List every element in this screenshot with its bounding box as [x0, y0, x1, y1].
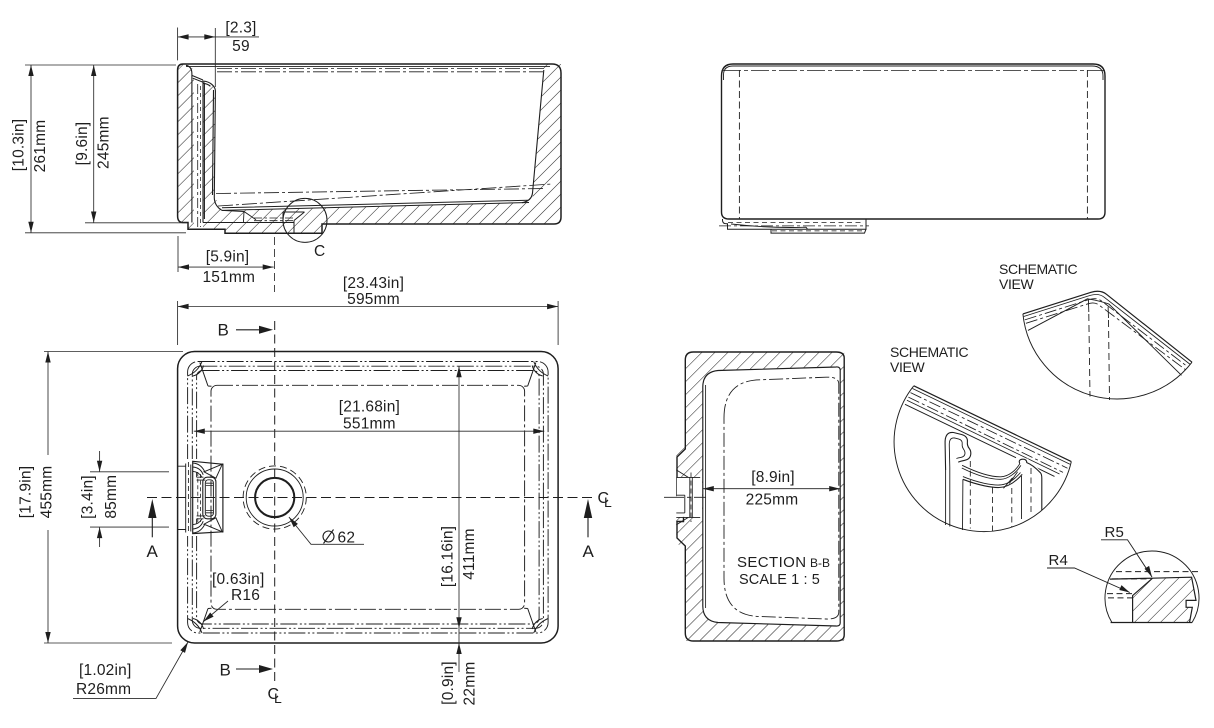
svg-text:[2.3]: [2.3]: [225, 20, 256, 37]
svg-text:R5: R5: [1105, 524, 1125, 541]
svg-text:SCHEMATIC: SCHEMATIC: [890, 344, 968, 360]
svg-text:A: A: [147, 542, 159, 561]
svg-text:[17.9in]: [17.9in]: [18, 466, 35, 518]
svg-text:L: L: [274, 690, 282, 706]
svg-text:B: B: [220, 661, 231, 680]
svg-text:A: A: [583, 542, 595, 561]
svg-text:62: 62: [338, 530, 356, 547]
svg-text:225mm: 225mm: [746, 492, 799, 509]
svg-text:SECTION: SECTION: [737, 554, 806, 571]
svg-text:R16: R16: [231, 587, 260, 604]
svg-text:SCHEMATIC: SCHEMATIC: [999, 261, 1077, 277]
svg-text:59: 59: [232, 38, 250, 55]
svg-text:261mm: 261mm: [32, 120, 49, 173]
svg-text:[0.9in]: [0.9in]: [440, 661, 457, 705]
svg-text:151mm: 151mm: [202, 269, 255, 286]
svg-text:[1.02in]: [1.02in]: [79, 662, 131, 679]
svg-text:R26mm: R26mm: [76, 681, 131, 698]
svg-text:SCALE 1 : 5: SCALE 1 : 5: [739, 572, 820, 588]
svg-text:85mm: 85mm: [103, 475, 120, 519]
svg-text:245mm: 245mm: [96, 116, 113, 169]
svg-text:VIEW: VIEW: [890, 359, 926, 375]
svg-text:[5.9in]: [5.9in]: [206, 249, 250, 266]
svg-text:455mm: 455mm: [39, 466, 56, 519]
svg-text:411mm: 411mm: [461, 528, 478, 580]
svg-text:L: L: [604, 494, 612, 510]
svg-text:[10.3in]: [10.3in]: [11, 119, 28, 171]
svg-text:R4: R4: [1049, 552, 1069, 569]
svg-text:[23.43in]: [23.43in]: [343, 275, 404, 292]
svg-text:[3.4in]: [3.4in]: [80, 475, 97, 519]
svg-text:595mm: 595mm: [347, 291, 400, 308]
svg-text:551mm: 551mm: [343, 416, 396, 433]
svg-text:[9.6in]: [9.6in]: [74, 122, 91, 166]
svg-text:C: C: [314, 243, 325, 260]
svg-text:B-B: B-B: [810, 556, 830, 570]
svg-text:22mm: 22mm: [462, 662, 479, 706]
svg-text:[0.63in]: [0.63in]: [212, 571, 264, 588]
svg-text:B: B: [218, 321, 229, 340]
svg-text:[21.68in]: [21.68in]: [339, 399, 400, 416]
svg-text:VIEW: VIEW: [999, 276, 1035, 292]
svg-text:[16.16in]: [16.16in]: [439, 526, 456, 587]
svg-text:[8.9in]: [8.9in]: [751, 469, 795, 486]
